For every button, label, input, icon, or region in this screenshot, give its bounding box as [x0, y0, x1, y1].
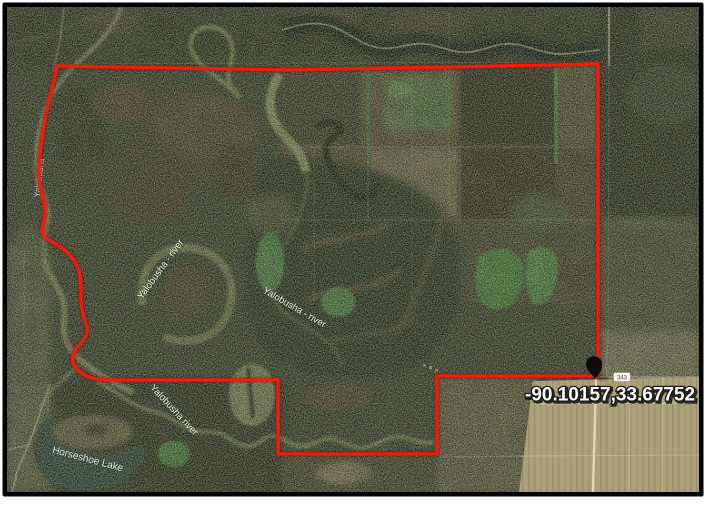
svg-text:-90.10157,33.67752: -90.10157,33.67752 [525, 385, 695, 406]
svg-text:343: 343 [617, 375, 628, 381]
